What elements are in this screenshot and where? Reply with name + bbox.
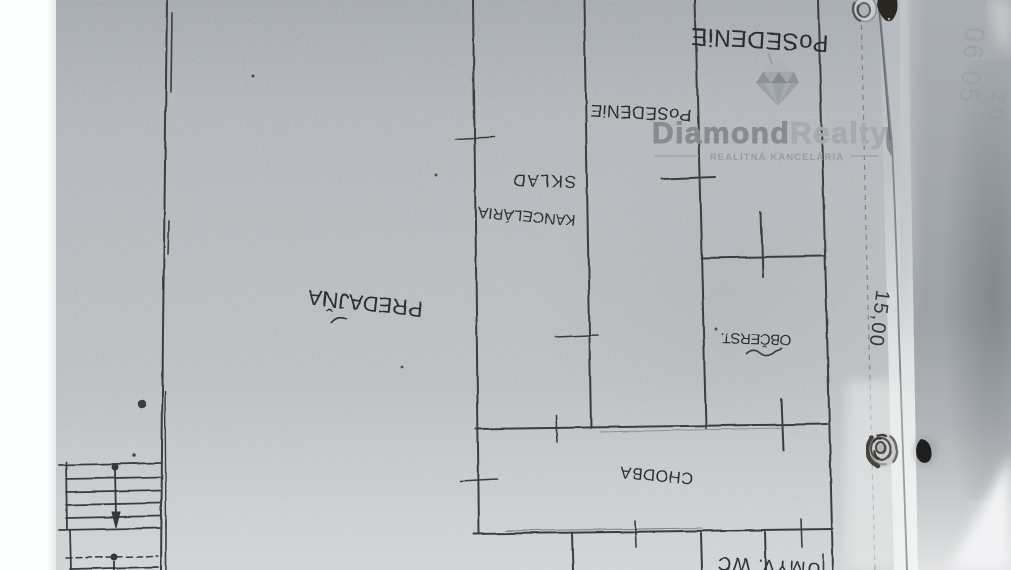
svg-text:DiamondRealty: DiamondRealty — [652, 117, 889, 150]
svg-text:SKLAD: SKLAD — [511, 170, 577, 192]
svg-text:2 0: 2 0 — [985, 91, 1009, 121]
svg-text:OBČERST.: OBČERST. — [720, 329, 792, 348]
svg-text:REALITNÁ KANCELÁRIA: REALITNÁ KANCELÁRIA — [710, 152, 844, 163]
